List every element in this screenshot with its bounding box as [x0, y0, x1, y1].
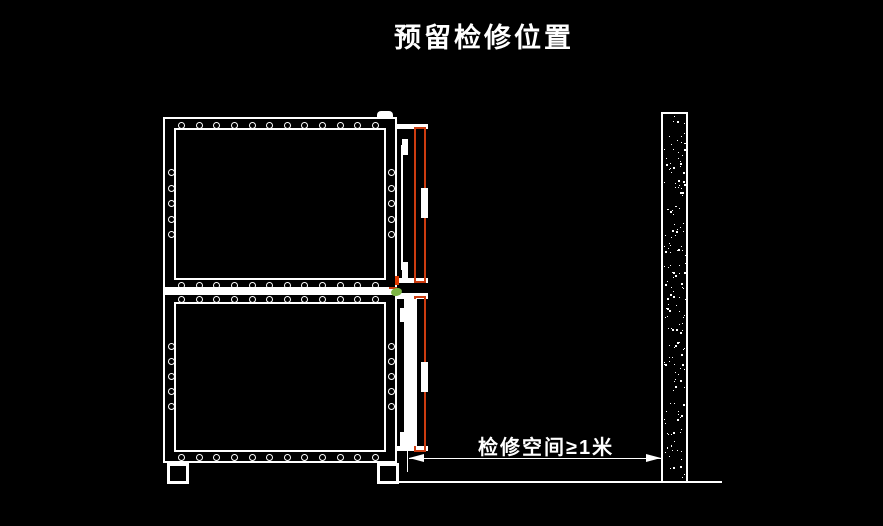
wall-hatch-speck	[670, 168, 671, 169]
wall-hatch-speck	[670, 265, 671, 266]
bolt-icon	[196, 454, 203, 461]
latch-mark-red	[395, 276, 399, 285]
wall-hatch-speck	[680, 380, 682, 382]
wall-hatch-speck	[682, 364, 684, 366]
bolt-icon	[388, 373, 395, 380]
wall-hatch-speck	[675, 183, 676, 184]
bolt-icon	[372, 122, 379, 129]
wall-hatch-speck	[664, 362, 665, 363]
bolt-icon	[284, 122, 291, 129]
wall-hatch-speck	[678, 411, 679, 412]
wall-hatch-speck	[677, 342, 679, 344]
wall-hatch-speck	[681, 246, 682, 247]
wall-hatch-speck	[680, 227, 681, 228]
wall-hatch-speck	[664, 246, 665, 247]
wall-hatch-speck	[678, 414, 679, 415]
wall-hatch-speck	[665, 284, 667, 286]
wall-hatch-speck	[679, 185, 680, 186]
bolt-icon	[337, 122, 344, 129]
wall-hatch-speck	[679, 342, 680, 343]
bolt-icon	[388, 185, 395, 192]
wall-hatch-speck	[669, 310, 671, 312]
wall-hatch-speck	[681, 142, 682, 143]
wall-hatch-speck	[669, 345, 670, 346]
wall-hatch-speck	[683, 231, 684, 232]
bolt-icon	[168, 200, 175, 207]
wall-hatch-speck	[682, 195, 683, 196]
cabinet-foot-right	[377, 463, 399, 484]
wall-hatch-speck	[680, 432, 681, 433]
bolt-icon	[178, 296, 185, 303]
wall-hatch-speck	[683, 223, 684, 224]
wall-hatch-speck	[667, 308, 669, 310]
bolt-icon	[231, 454, 238, 461]
wall-hatch-speck	[677, 419, 679, 421]
wall-hatch-speck	[673, 277, 674, 278]
wall-hatch-speck	[672, 272, 673, 273]
wall-hatch-speck	[683, 317, 684, 318]
wall-hatch-speck	[666, 411, 667, 412]
wall-hatch-speck	[680, 332, 682, 334]
bolt-icon	[388, 169, 395, 176]
cad-drawing-canvas: 预留检修位置 检修空间≥1米	[0, 0, 883, 526]
cabinet-lower-box	[163, 291, 397, 463]
drawing-title: 预留检修位置	[394, 16, 574, 55]
wall-hatch-speck	[665, 235, 666, 236]
dimension-arrow-left-icon	[409, 454, 424, 462]
wall-hatch-speck	[680, 161, 681, 162]
wall-hatch-speck	[685, 299, 686, 300]
bolt-icon	[388, 388, 395, 395]
bolt-icon	[337, 454, 344, 461]
dimension-label: 检修空间≥1米	[478, 431, 614, 460]
wall-hatch-speck	[672, 210, 673, 211]
wall-hatch-speck	[674, 381, 675, 382]
bolt-icon	[168, 185, 175, 192]
wall-hatch-speck	[674, 441, 675, 442]
wall-hatch-speck	[666, 308, 667, 309]
wall-hatch-speck	[678, 249, 680, 251]
bolt-icon	[354, 454, 361, 461]
wall-hatch-speck	[681, 415, 683, 417]
bolt-icon	[372, 454, 379, 461]
wall-hatch-speck	[684, 185, 685, 186]
wall-hatch-speck	[670, 294, 672, 296]
cabinet-upper-box	[163, 117, 397, 291]
wall-hatch-speck	[684, 369, 685, 370]
wall-hatch-speck	[681, 451, 682, 452]
bolt-icon	[319, 454, 326, 461]
wall-hatch-speck	[668, 328, 669, 329]
wall-hatch-speck	[678, 374, 679, 375]
bolt-icon	[284, 296, 291, 303]
wall-hatch-speck	[666, 164, 668, 166]
wall-hatch-speck	[681, 188, 682, 189]
wall-hatch-speck	[671, 287, 672, 288]
bolt-icon	[388, 200, 395, 207]
wall-hatch-speck	[664, 266, 665, 267]
wall-hatch-speck	[677, 250, 678, 251]
wall-hatch-speck	[670, 163, 671, 164]
bolt-icon	[388, 231, 395, 238]
wall-hatch-speck	[684, 348, 685, 349]
wall-hatch-speck	[673, 121, 674, 122]
bolt-icon	[337, 296, 344, 303]
wall-hatch-speck	[684, 387, 685, 388]
wall-hatch-speck	[670, 245, 671, 246]
bolt-icon	[388, 403, 395, 410]
wall-hatch-speck	[671, 328, 672, 329]
wall-hatch-speck	[684, 123, 685, 124]
wall-hatch-speck	[676, 206, 677, 207]
bolt-icon	[372, 296, 379, 303]
wall-hatch-speck	[677, 450, 678, 451]
wall-hatch-speck	[668, 209, 669, 210]
wall-hatch-speck	[684, 149, 686, 151]
wall-hatch-speck	[678, 152, 679, 153]
bolt-icon	[249, 122, 256, 129]
wall-hatch-speck	[682, 477, 683, 478]
bolt-icon	[168, 358, 175, 365]
cabinet-lower-panel	[174, 302, 386, 452]
wall-hatch-speck	[674, 224, 675, 225]
wall-hatch-speck	[676, 305, 677, 306]
wall-hatch-speck	[670, 403, 671, 404]
wall-hatch-speck	[675, 379, 676, 380]
lower-door-panel	[404, 299, 417, 446]
wall-hatch-speck	[679, 265, 680, 266]
wall-hatch-speck	[685, 255, 686, 256]
wall-hatch-speck	[683, 288, 684, 289]
wall-hatch-speck	[675, 275, 677, 277]
wall-hatch-speck	[672, 230, 674, 232]
bolt-icon	[388, 216, 395, 223]
wall-hatch-speck	[669, 361, 670, 362]
bolt-icon	[168, 169, 175, 176]
bolt-icon	[168, 216, 175, 223]
cabinet-upper-panel	[174, 128, 386, 280]
wall-hatch-speck	[680, 466, 682, 468]
wall-hatch-speck	[679, 297, 680, 298]
wall-hatch-speck	[680, 163, 682, 165]
bolt-icon	[168, 403, 175, 410]
wall-hatch-speck	[664, 149, 665, 150]
wall-hatch-speck	[668, 304, 669, 305]
wall-hatch-speck	[673, 467, 675, 469]
wall-hatch-speck	[675, 386, 677, 388]
wall-hatch-speck	[673, 214, 674, 215]
upper-door-hinge-bottom	[402, 262, 408, 278]
bolt-icon	[388, 343, 395, 350]
bolt-icon	[178, 454, 185, 461]
wall-hatch-speck	[679, 311, 680, 312]
bolt-icon	[168, 373, 175, 380]
wall-hatch-speck	[665, 423, 666, 424]
wall-hatch-speck	[671, 434, 672, 435]
bolt-icon	[178, 122, 185, 129]
wall-hatch-speck	[670, 252, 671, 253]
wall-hatch-speck	[681, 283, 683, 285]
wall-hatch-speck	[681, 354, 683, 356]
wall-hatch-speck	[671, 172, 672, 173]
wall-hatch-speck	[672, 357, 673, 358]
wall-hatch-speck	[666, 158, 667, 159]
wall-hatch-speck	[669, 357, 670, 358]
wall-hatch-speck	[684, 474, 685, 475]
wall-hatch-speck	[677, 121, 679, 123]
wall-hatch-speck	[676, 231, 678, 233]
wall-hatch-speck	[674, 364, 675, 365]
wall-hatch-speck	[664, 419, 665, 420]
ground-line	[398, 481, 722, 483]
wall-hatch-speck	[671, 446, 672, 447]
wall-hatch-speck	[685, 263, 686, 264]
wall-hatch-speck	[679, 208, 680, 209]
cabinet-foot-left	[167, 463, 189, 484]
wall-hatch-speck	[671, 445, 672, 446]
wall-hatch-speck	[675, 345, 677, 347]
wall-hatch-speck	[669, 136, 670, 137]
wall-hatch-speck	[673, 432, 675, 434]
wall-hatch-speck	[672, 450, 673, 451]
bolt-icon	[249, 454, 256, 461]
wall-hatch-speck	[680, 166, 681, 167]
wall-hatch-speck	[665, 364, 667, 366]
bolt-icon	[168, 231, 175, 238]
wall-hatch-speck	[665, 251, 667, 253]
wall-hatch-speck	[673, 390, 674, 391]
wall-hatch-speck	[682, 323, 683, 324]
wall-hatch-speck	[674, 116, 675, 117]
bolt-icon	[284, 454, 291, 461]
wall-hatch-speck	[668, 434, 669, 435]
wall-hatch-speck	[667, 447, 668, 448]
wall-hatch-speck	[667, 298, 669, 300]
wall-hatch-speck	[678, 180, 680, 182]
wall-hatch-speck	[683, 172, 685, 174]
wall-hatch-speck	[679, 273, 680, 274]
wall-hatch-speck	[678, 187, 679, 188]
wall-hatch-speck	[681, 429, 682, 430]
wall-hatch-speck	[680, 417, 681, 418]
wall-hatch-speck	[665, 452, 666, 453]
wall-hatch-speck	[671, 237, 672, 238]
wall-hatch-speck	[685, 143, 686, 144]
wall-hatch-speck	[664, 182, 665, 183]
wall-hatch-speck	[679, 324, 680, 325]
wall-hatch-speck	[665, 317, 666, 318]
wall-hatch-speck	[675, 206, 676, 207]
bolt-icon	[301, 454, 308, 461]
wall-hatch-speck	[684, 133, 685, 134]
lower-door-hinge-top	[400, 308, 405, 322]
bolt-icon	[231, 296, 238, 303]
wall-hatch-speck	[670, 468, 671, 469]
wall-hatch-speck	[682, 155, 683, 156]
bolt-icon	[196, 122, 203, 129]
bolt-icon	[196, 296, 203, 303]
wall-hatch-speck	[682, 250, 683, 251]
wall-hatch-speck	[678, 158, 679, 159]
bolt-icon	[168, 343, 175, 350]
wall-hatch-speck	[680, 368, 681, 369]
wall-hatch-speck	[680, 192, 682, 194]
wall-hatch-speck	[677, 140, 678, 141]
wall-hatch-speck	[682, 330, 683, 331]
wall-hatch-speck	[673, 167, 675, 169]
cabinet-flange-joint	[163, 287, 397, 295]
wall-hatch-speck	[673, 149, 674, 150]
wall-hatch-speck	[667, 316, 668, 317]
lower-door-hinge-bottom	[400, 432, 405, 446]
wall-hatch-speck	[681, 459, 682, 460]
bolt-icon	[231, 122, 238, 129]
bolt-icon	[266, 454, 273, 461]
wall-hatch-speck	[668, 248, 669, 249]
wall-hatch-speck	[673, 296, 675, 298]
dimension-arrow-right-icon	[646, 454, 661, 462]
bolt-icon	[388, 358, 395, 365]
wall-hatch-speck	[673, 291, 674, 292]
bolt-icon	[168, 388, 175, 395]
wall-hatch-speck	[670, 211, 672, 213]
wall-hatch-speck	[667, 281, 668, 282]
bolt-icon	[213, 454, 220, 461]
lifting-lug	[377, 111, 393, 118]
wall-hatch-speck	[682, 192, 684, 194]
wall-hatch-speck	[681, 136, 682, 137]
upper-door-pivot-rod	[401, 145, 403, 270]
wall-hatch-speck	[672, 329, 674, 331]
lower-door-handle	[421, 362, 428, 392]
wall-hatch-speck	[675, 372, 676, 373]
wall-hatch-speck	[684, 272, 686, 274]
upper-door-hinge-top	[402, 139, 408, 155]
wall-column	[661, 112, 688, 483]
wall-hatch-speck	[683, 404, 685, 406]
wall-hatch-speck	[674, 403, 675, 404]
upper-door-handle	[421, 188, 428, 218]
wall-hatch-speck	[683, 181, 685, 183]
wall-hatch-speck	[671, 144, 672, 145]
wall-hatch-speck	[677, 229, 678, 230]
wall-hatch-speck	[669, 456, 670, 457]
bolt-icon	[249, 296, 256, 303]
dimension-extension-line	[407, 444, 408, 472]
wall-hatch-speck	[676, 329, 678, 331]
wall-hatch-speck	[675, 235, 676, 236]
wall-hatch-speck	[675, 187, 676, 188]
wall-hatch-speck	[668, 267, 669, 268]
